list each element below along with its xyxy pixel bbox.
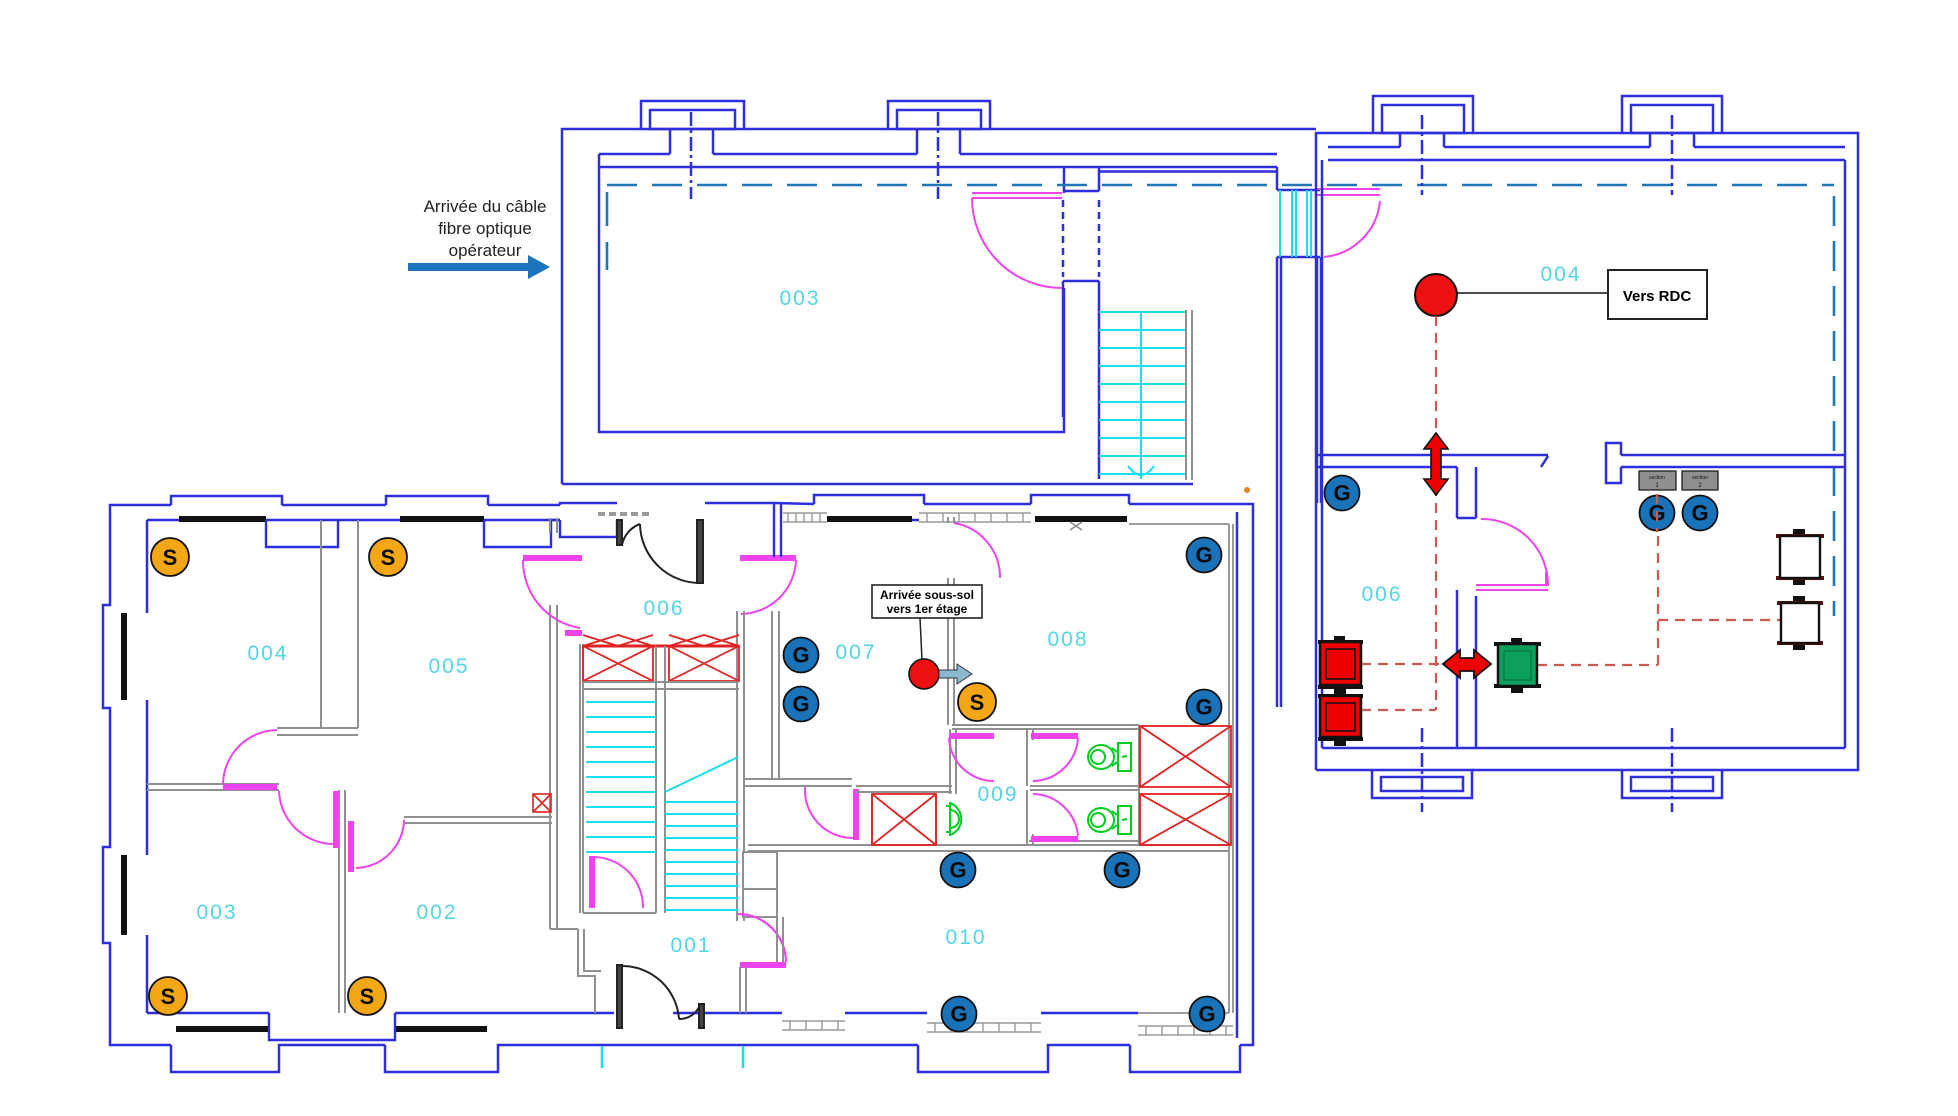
svg-text:fibre optique: fibre optique <box>438 219 532 238</box>
svg-text:009: 009 <box>977 783 1018 806</box>
svg-text:section: section <box>1692 475 1708 481</box>
svg-text:004: 004 <box>247 642 288 665</box>
svg-text:001: 001 <box>670 934 711 957</box>
svg-text:section: section <box>1649 475 1665 481</box>
svg-text:002: 002 <box>416 901 457 924</box>
svg-text:Vers RDC: Vers RDC <box>1623 288 1692 305</box>
svg-text:004: 004 <box>1540 263 1581 286</box>
svg-text:003: 003 <box>196 901 237 924</box>
svg-text:010: 010 <box>945 926 986 949</box>
svg-text:Arrivée du câble: Arrivée du câble <box>424 197 547 216</box>
svg-text:vers 1er étage: vers 1er étage <box>887 602 968 616</box>
svg-text:006: 006 <box>1361 583 1402 606</box>
svg-text:006: 006 <box>643 597 684 620</box>
svg-text:opérateur: opérateur <box>449 241 522 260</box>
svg-text:003: 003 <box>779 287 820 310</box>
svg-text:008: 008 <box>1047 628 1088 651</box>
svg-text:007: 007 <box>835 641 876 664</box>
svg-text:005: 005 <box>428 655 469 678</box>
svg-text:Arrivée sous-sol: Arrivée sous-sol <box>880 588 974 602</box>
